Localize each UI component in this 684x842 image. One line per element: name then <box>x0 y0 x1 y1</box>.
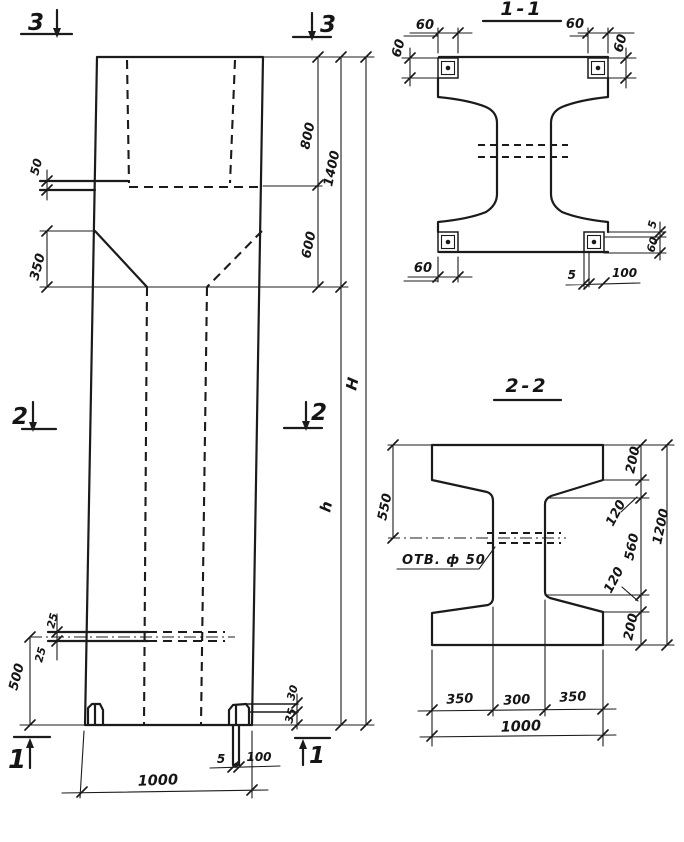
dim-label-1200: 1200 <box>650 507 672 546</box>
marker-1-right-label: 1 <box>309 743 325 769</box>
dim-label-560: 560 <box>622 532 642 562</box>
plate-bottom-left-anchor <box>446 240 451 245</box>
marker-2-left-label: 2 <box>12 404 28 430</box>
dim-label-1400: 1400 <box>321 149 343 188</box>
corner-plates <box>438 58 608 252</box>
dim-label-300: 300 <box>503 692 531 708</box>
marker-1-left-label: 1 <box>8 745 26 775</box>
dim-label-30: 30 <box>284 683 301 701</box>
dim-label-5-br: 5 <box>568 268 576 282</box>
column-outline <box>40 57 263 765</box>
dim-label-100-br: 100 <box>612 266 637 280</box>
dim-label-60-tl-h: 60 <box>389 38 408 59</box>
plate-bottom-right-anchor <box>592 240 597 245</box>
dim-label-60-tr-w: 60 <box>566 17 584 32</box>
marker-3-right-label: 3 <box>320 12 336 38</box>
plate-top-left-anchor <box>446 66 451 71</box>
dim-label-5-right: 5 <box>645 219 660 230</box>
dim-label-H: H <box>342 375 362 391</box>
dim-label-5: 5 <box>217 752 225 766</box>
dim-label-800: 800 <box>298 121 318 151</box>
column-drawing: 3 3 2 2 1 1 50 350 800 1400 600 H h <box>0 0 684 842</box>
hole-note-label: ОТВ. ф 50 <box>402 553 486 568</box>
marker-2-right-arrow <box>302 421 310 431</box>
section-2-2-title: 2-2 <box>505 375 548 397</box>
elevation-view: 3 3 2 2 1 1 50 350 800 1400 600 H h <box>6 10 374 798</box>
dim-label-350-left: 350 <box>446 691 474 707</box>
dim-label-h: h <box>316 500 336 514</box>
marker-2-right-label: 2 <box>311 400 327 426</box>
section-1-1-title: 1-1 <box>500 0 543 20</box>
dim-label-120-upper: 120 <box>603 498 629 529</box>
dim-label-60-bl: 60 <box>414 261 432 276</box>
dim-label-25-lower: 25 <box>32 645 49 663</box>
dim-label-50: 50 <box>27 157 45 177</box>
elevation-dim-labels: 50 350 800 1400 600 H h 25 25 500 30 35 … <box>6 121 362 790</box>
marker-1-right-arrow <box>299 739 307 749</box>
dim-label-60-tr-h: 60 <box>611 33 630 54</box>
anchor-dot <box>234 763 238 767</box>
dim-label-350: 350 <box>27 252 49 282</box>
dim-label-200-bottom: 200 <box>621 612 641 642</box>
dim-label-100: 100 <box>246 750 271 764</box>
dim-label-600: 600 <box>299 230 319 260</box>
dim-label-120-lower: 120 <box>601 565 627 596</box>
marker-1-left-arrow <box>26 738 34 748</box>
section-2-2-view: 2-2 550 ОТВ. ф 50 200 120 560 120 200 12… <box>375 375 674 746</box>
dim-label-25-upper: 25 <box>44 611 61 629</box>
drawing-sheet: 3 3 2 2 1 1 50 350 800 1400 600 H h <box>0 0 684 842</box>
section-1-1-outline <box>438 57 608 252</box>
section-2-2-outline <box>432 445 603 645</box>
dim-label-350-right: 350 <box>559 689 587 705</box>
dim-label-60-tl-w: 60 <box>416 18 434 33</box>
column-hidden-lines <box>127 60 262 724</box>
marker-3-left-label: 3 <box>28 10 44 36</box>
section-2-2-dim-labels: 550 ОТВ. ф 50 200 120 560 120 200 1200 3… <box>375 445 672 736</box>
dim-label-500: 500 <box>6 662 28 692</box>
dim-label-1000-bottom: 1000 <box>500 718 541 735</box>
dim-label-1000: 1000 <box>137 772 178 789</box>
section-1-1-view: 1-1 60 60 60 60 60 5 10 <box>389 0 666 289</box>
section-2-2-dim-lines <box>388 445 674 746</box>
marker-2-left-arrow <box>29 422 37 432</box>
section-1-1-web-hole <box>478 145 568 157</box>
plate-top-right-anchor <box>596 66 601 71</box>
